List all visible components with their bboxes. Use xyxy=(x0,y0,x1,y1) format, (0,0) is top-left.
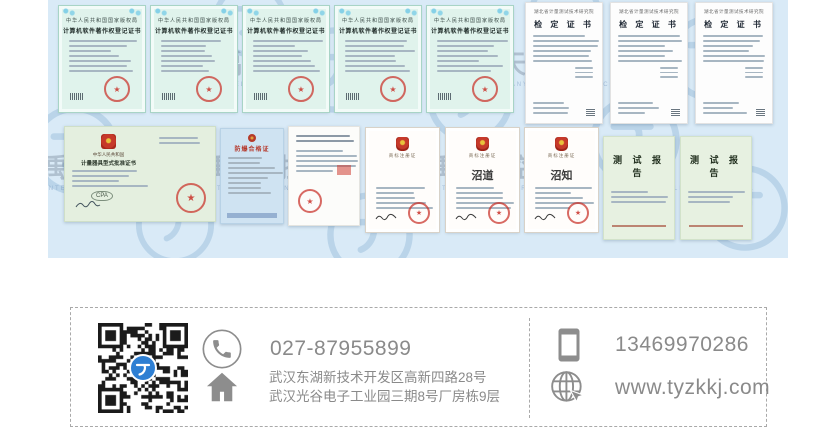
text-line xyxy=(456,192,503,194)
text-line xyxy=(72,180,119,182)
qr-code xyxy=(98,323,188,413)
text-line xyxy=(69,65,127,67)
national-emblem-icon xyxy=(396,137,409,151)
text-line xyxy=(745,76,763,78)
contact-section: 027-87955899 武汉东湖新技术开发区高新四路28号 武汉光谷电子工业园… xyxy=(70,307,767,427)
mobile-phone-icon xyxy=(551,327,587,363)
signature xyxy=(75,197,101,215)
text-line xyxy=(296,135,350,137)
text-lines xyxy=(62,40,142,72)
text-line xyxy=(618,40,682,42)
text-line xyxy=(228,167,275,169)
red-stamp xyxy=(337,165,351,175)
text-line xyxy=(533,55,589,57)
text-lines xyxy=(289,135,359,142)
text-line xyxy=(161,50,205,52)
text-line xyxy=(345,45,404,47)
text-line xyxy=(703,50,749,52)
verification-certificate: 湖北省计量测试技术研究院 检 定 证 书 xyxy=(610,2,688,124)
text-line xyxy=(745,72,763,74)
phone-number: 027-87955899 xyxy=(270,337,411,361)
text-line xyxy=(703,35,763,37)
text-line xyxy=(533,107,569,109)
text-line xyxy=(703,45,753,47)
text-line xyxy=(161,40,221,42)
text-lines xyxy=(696,35,772,62)
text-lines xyxy=(65,170,152,187)
text-line xyxy=(437,55,498,57)
text-lines xyxy=(526,102,578,114)
red-seal: ★ xyxy=(408,202,430,224)
website-row: www.tyzkkj.com xyxy=(549,369,770,407)
text-line xyxy=(533,45,598,47)
text-line xyxy=(575,72,593,74)
mobile-row: 13469970286 xyxy=(551,327,749,363)
barcode xyxy=(438,93,452,100)
certificate-authority: 中华人民共和国国家版权局 xyxy=(62,17,142,24)
text-line xyxy=(703,55,765,57)
text-line xyxy=(376,197,415,199)
text-line xyxy=(228,182,261,184)
text-line xyxy=(228,187,261,189)
text-line xyxy=(253,45,295,47)
text-line xyxy=(437,50,488,52)
text-line xyxy=(618,112,645,114)
text-line xyxy=(296,140,354,142)
signature xyxy=(534,213,556,222)
text-lines xyxy=(611,102,663,114)
text-line xyxy=(253,50,308,52)
text-line xyxy=(703,40,760,42)
text-line xyxy=(688,201,730,203)
text-line xyxy=(69,70,133,72)
text-line xyxy=(618,55,665,57)
text-line xyxy=(660,72,678,74)
text-line xyxy=(159,137,198,139)
text-line xyxy=(703,102,739,104)
text-lines xyxy=(611,35,687,62)
text-lines xyxy=(221,157,283,194)
text-line xyxy=(72,175,129,177)
issuer-line xyxy=(689,225,743,228)
text-line xyxy=(618,50,673,52)
certificate-issuer: 湖北省计量测试技术研究院 xyxy=(526,9,602,15)
signature xyxy=(375,213,397,222)
text-line xyxy=(611,196,668,198)
text-line xyxy=(660,76,678,78)
text-line xyxy=(745,67,763,69)
text-lines xyxy=(152,137,212,144)
text-line xyxy=(296,160,358,162)
text-line xyxy=(296,155,357,157)
text-line xyxy=(575,67,593,69)
certificate-title: 计量器具型式批准证书 xyxy=(65,159,152,167)
text-line xyxy=(253,65,315,67)
text-lines xyxy=(526,35,602,62)
text-line xyxy=(253,70,320,72)
text-line xyxy=(345,40,407,42)
address-line-2: 武汉光谷电子工业园三期8号厂房栋9层 xyxy=(269,387,500,406)
text-line xyxy=(533,50,591,52)
text-line xyxy=(253,40,323,42)
barcode xyxy=(346,93,360,100)
contact-divider xyxy=(529,318,530,418)
barcode xyxy=(70,93,84,100)
trademark-certificate: 商标注册证 沼知 ★ xyxy=(525,128,598,232)
text-line xyxy=(69,40,137,42)
phone-row: 027-87955899 xyxy=(202,329,411,369)
text-line xyxy=(703,112,747,114)
text-line xyxy=(345,65,405,67)
barcode xyxy=(671,108,680,116)
text-line xyxy=(660,67,678,69)
red-seal: ★ xyxy=(196,76,222,102)
text-line xyxy=(72,170,137,172)
text-line xyxy=(69,45,127,47)
text-line xyxy=(688,191,745,193)
text-line xyxy=(69,55,119,57)
national-emblem-icon xyxy=(101,134,116,149)
verification-certificate: 湖北省计量测试技术研究院 检 定 证 书 xyxy=(695,2,773,124)
text-line xyxy=(376,187,425,189)
red-seal: ★ xyxy=(298,189,322,213)
text-line xyxy=(618,35,680,37)
text-line xyxy=(161,60,215,62)
company-logo-icon xyxy=(129,354,157,382)
text-line xyxy=(533,35,585,37)
text-line xyxy=(228,172,283,174)
text-line xyxy=(611,201,666,203)
text-line xyxy=(69,50,111,52)
text-line xyxy=(533,112,568,114)
trademark-certificate: 商标注册证 ★ xyxy=(366,128,439,232)
page: 天禹智控TIANYU INTELLIGENT CONTROL天禹智控TIANYU… xyxy=(0,0,840,432)
text-line xyxy=(228,162,260,164)
text-line xyxy=(376,192,414,194)
text-lines xyxy=(154,40,234,72)
mobile-number: 13469970286 xyxy=(615,333,749,357)
certificates-collage: 天禹智控TIANYU INTELLIGENT CONTROL天禹智控TIANYU… xyxy=(48,0,788,258)
barcode xyxy=(162,93,176,100)
text-lines xyxy=(430,40,510,72)
text-line xyxy=(161,70,209,72)
text-line xyxy=(253,60,311,62)
barcode xyxy=(756,108,765,116)
text-line xyxy=(618,60,682,62)
text-lines xyxy=(681,191,751,203)
verification-certificate: 湖北省计量测试技术研究院 检 定 证 书 xyxy=(525,2,603,124)
certificate-title: 检 定 证 书 xyxy=(526,19,602,30)
inspection-certificate: ★ xyxy=(288,126,360,226)
text-line xyxy=(456,197,503,199)
text-line xyxy=(437,40,508,42)
text-line xyxy=(159,142,200,144)
text-line xyxy=(456,187,494,189)
text-line xyxy=(437,70,491,72)
red-seal: ★ xyxy=(104,76,130,102)
certificate-title: 计算机软件著作权登记证书 xyxy=(62,26,142,35)
type-approval-certificate: 中华人民共和国 计量器具型式批准证书 CPA ★ xyxy=(64,126,216,222)
address-row: 武汉东湖新技术开发区高新四路28号 武汉光谷电子工业园三期8号厂房栋9层 xyxy=(203,368,500,406)
text-lines xyxy=(696,67,772,78)
text-line xyxy=(575,76,593,78)
copyright-certificate: 中华人民共和国国家版权局 计算机软件著作权登记证书 ★ xyxy=(151,6,237,112)
test-report-certificate: 测 试 报 告 xyxy=(603,136,675,240)
explosion-proof-certificate: 防爆合格证 xyxy=(220,128,284,224)
text-line xyxy=(161,45,206,47)
barcode xyxy=(586,108,595,116)
text-line xyxy=(533,102,564,104)
red-seal: ★ xyxy=(567,202,589,224)
address-line-1: 武汉东湖新技术开发区高新四路28号 xyxy=(269,368,500,387)
red-seal: ★ xyxy=(472,76,498,102)
globe-icon xyxy=(549,369,587,407)
copyright-certificate: 中华人民共和国国家版权局 计算机软件著作权登记证书 ★ xyxy=(59,6,145,112)
certificate-footer xyxy=(227,213,277,218)
national-emblem-icon xyxy=(555,137,568,151)
text-line xyxy=(688,196,733,198)
certificate-title: 防爆合格证 xyxy=(221,144,283,153)
red-seal: ★ xyxy=(176,183,206,213)
text-line xyxy=(703,107,733,109)
text-line xyxy=(253,55,302,57)
text-line xyxy=(618,107,659,109)
emblem-icon xyxy=(248,134,256,142)
text-line xyxy=(618,45,665,47)
certificate-title: 商标注册证 xyxy=(369,153,436,159)
issuer-line xyxy=(612,225,666,228)
test-report-certificate: 测 试 报 告 xyxy=(680,136,752,240)
text-line xyxy=(611,191,648,193)
red-seal: ★ xyxy=(488,202,510,224)
text-lines xyxy=(338,40,418,72)
text-line xyxy=(535,197,583,199)
text-line xyxy=(533,40,599,42)
trademark-name: 沼道 xyxy=(449,167,516,181)
certificate-country: 中华人民共和国 xyxy=(65,152,152,158)
text-line xyxy=(437,45,494,47)
text-line xyxy=(161,65,203,67)
text-line xyxy=(345,50,415,52)
text-line xyxy=(228,157,262,159)
certificate-title: 测 试 报 告 xyxy=(604,153,674,179)
text-line xyxy=(345,70,410,72)
text-line xyxy=(618,102,653,104)
website-link[interactable]: www.tyzkkj.com xyxy=(615,376,770,400)
text-line xyxy=(72,185,148,187)
signature xyxy=(455,213,477,222)
phone-icon xyxy=(202,329,242,369)
text-lines xyxy=(246,40,326,72)
trademark-name xyxy=(369,167,436,181)
red-seal: ★ xyxy=(288,76,314,102)
text-lines xyxy=(696,102,748,114)
copyright-certificate: 中华人民共和国国家版权局 计算机软件著作权登记证书 ★ xyxy=(427,6,513,112)
copyright-certificate: 中华人民共和国国家版权局 计算机软件著作权登记证书 ★ xyxy=(335,6,421,112)
text-line xyxy=(535,187,592,189)
text-line xyxy=(703,60,764,62)
text-line xyxy=(161,55,212,57)
text-line xyxy=(437,60,479,62)
copyright-certificate: 中华人民共和国国家版权局 计算机软件著作权登记证书 ★ xyxy=(243,6,329,112)
text-lines xyxy=(604,191,674,203)
text-line xyxy=(535,192,571,194)
trademark-name: 沼知 xyxy=(528,167,595,181)
text-line xyxy=(228,192,271,194)
text-line xyxy=(345,55,395,57)
text-lines xyxy=(526,67,602,78)
text-line xyxy=(345,60,396,62)
text-line xyxy=(533,60,592,62)
text-line xyxy=(69,60,131,62)
barcode xyxy=(254,93,268,100)
text-lines xyxy=(611,67,687,78)
text-line xyxy=(228,177,268,179)
trademark-certificate: 商标注册证 沼道 ★ xyxy=(446,128,519,232)
national-emblem-icon xyxy=(476,137,489,151)
home-icon xyxy=(203,368,241,406)
text-line xyxy=(296,150,343,152)
text-line xyxy=(296,170,333,172)
text-line xyxy=(437,65,503,67)
red-seal: ★ xyxy=(380,76,406,102)
